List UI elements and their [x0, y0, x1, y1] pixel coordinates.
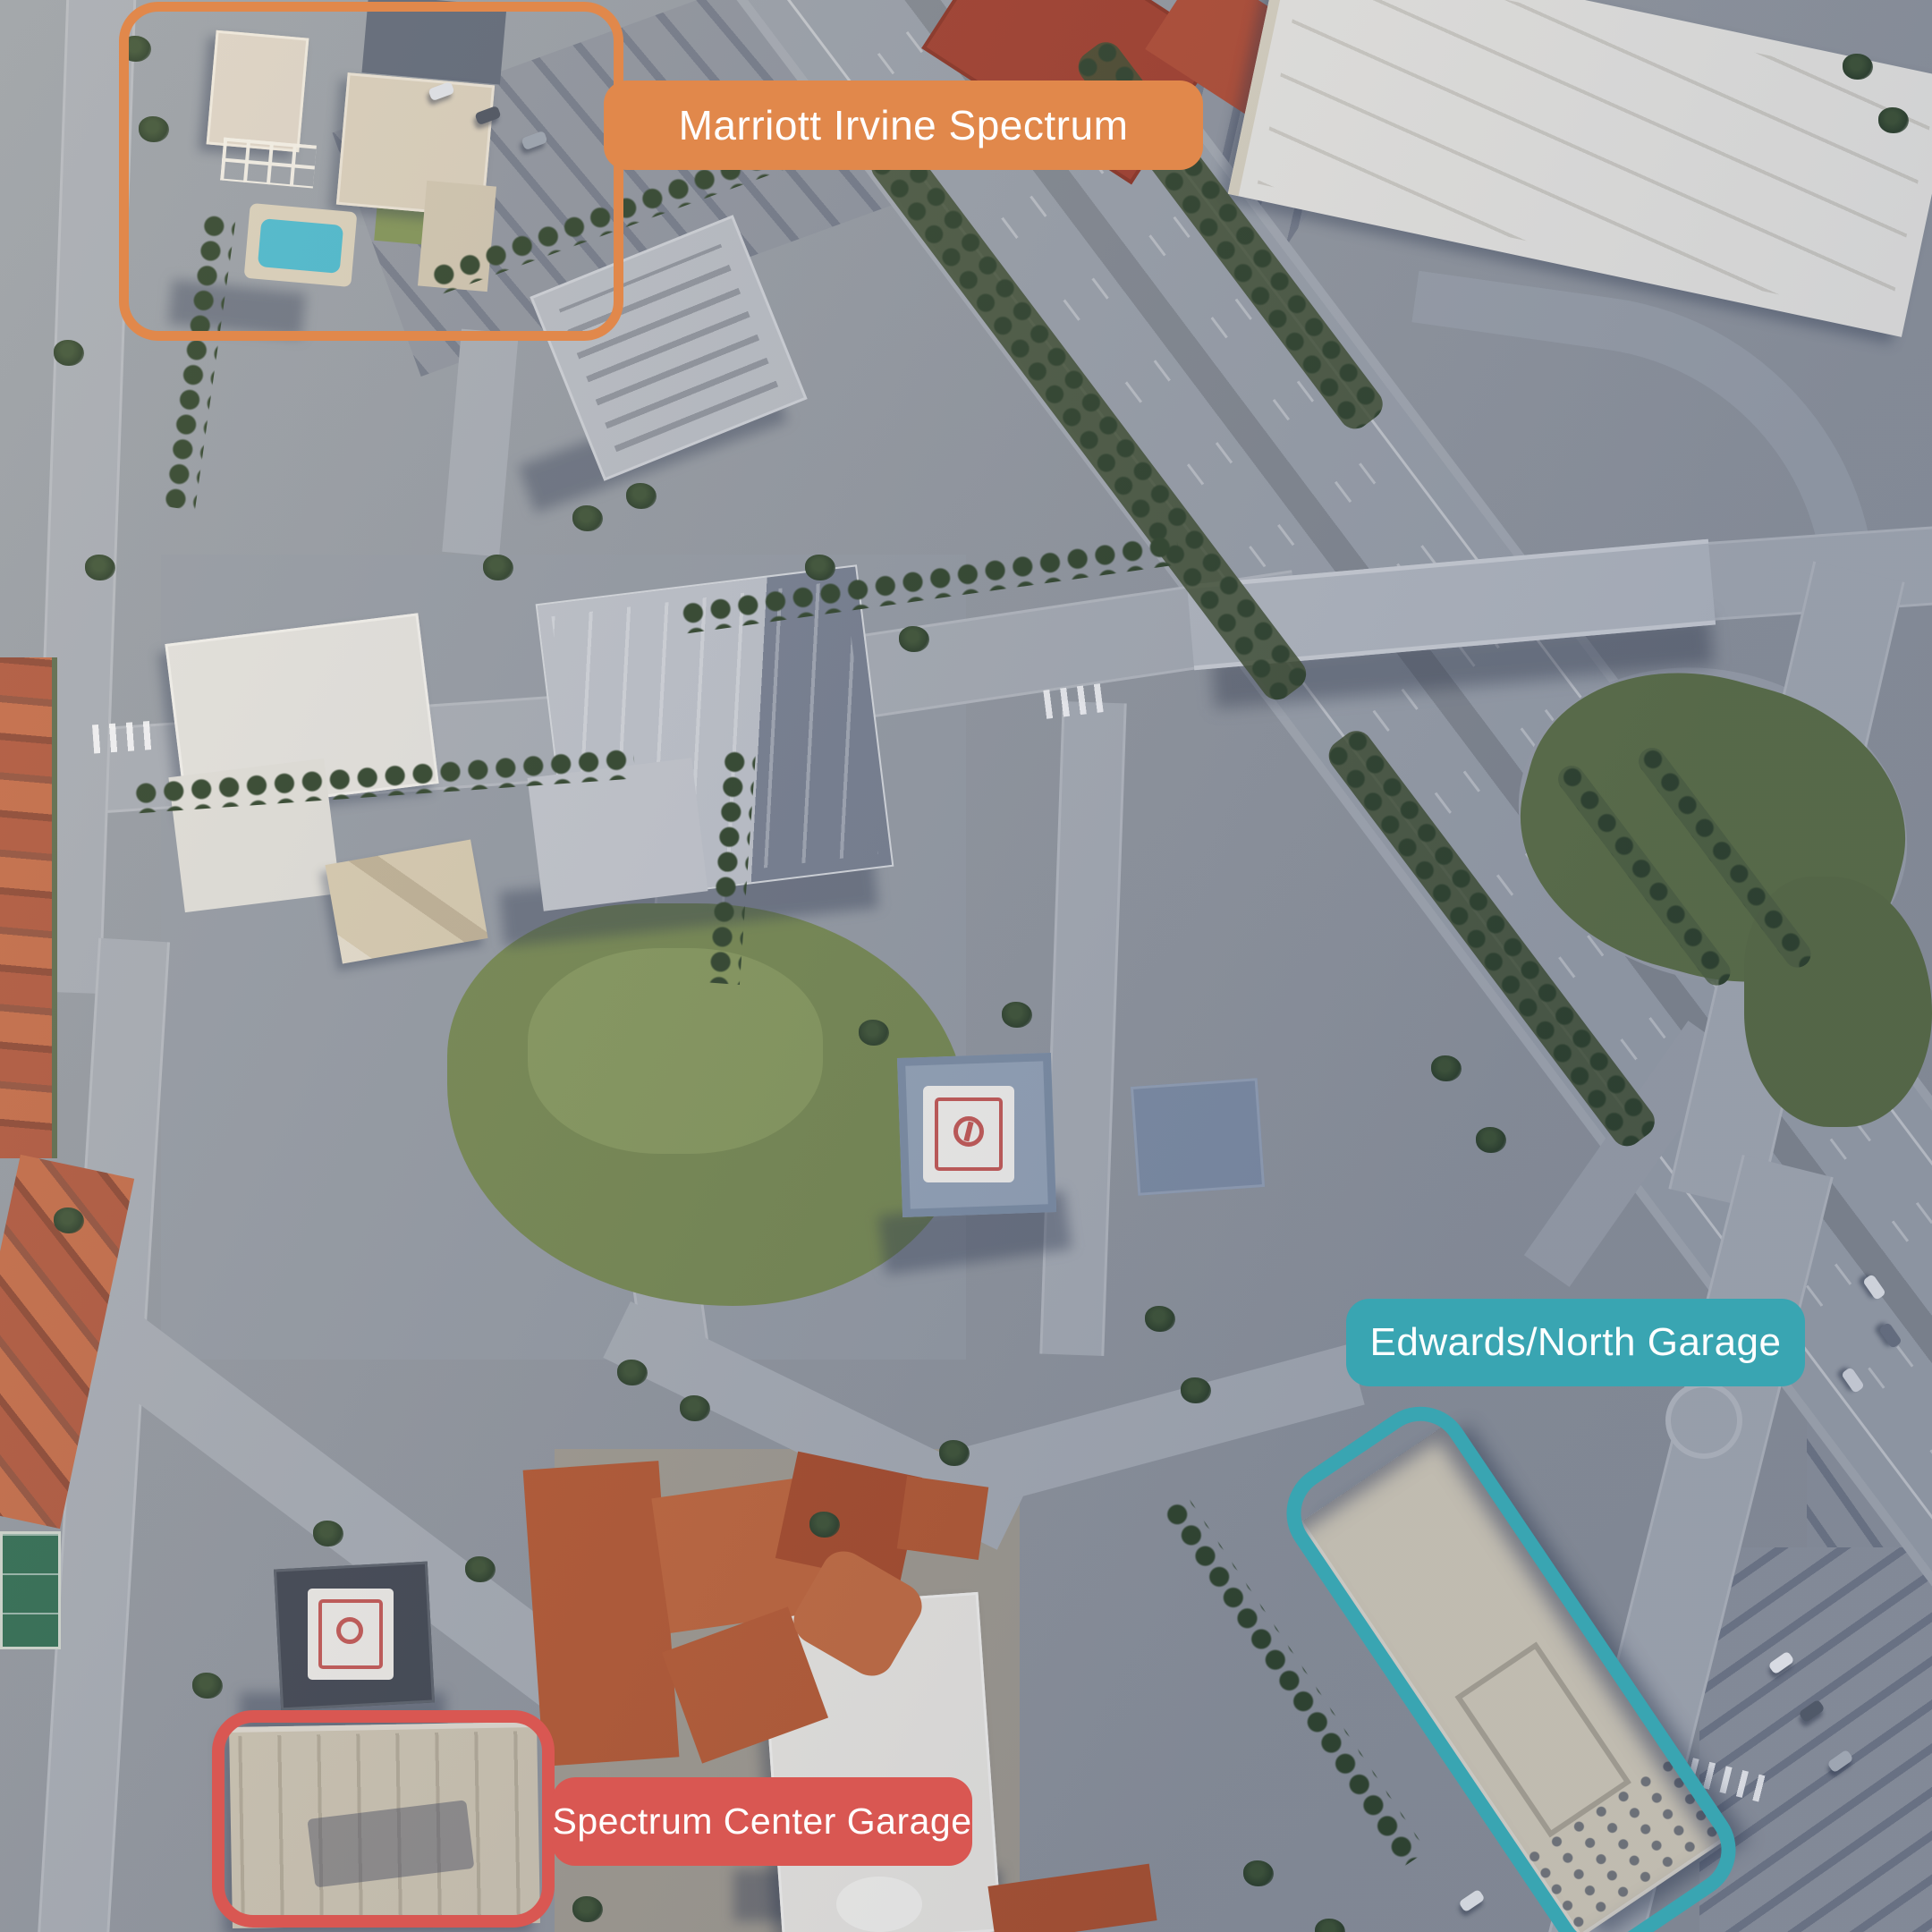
tree: [572, 505, 603, 531]
tree: [939, 1440, 970, 1466]
tree: [1315, 1919, 1345, 1932]
tree: [1843, 54, 1873, 80]
campus-lawn-bright: [528, 948, 823, 1154]
tree: [899, 626, 929, 652]
marriott-outline[interactable]: [119, 2, 623, 341]
tree: [1002, 1002, 1032, 1028]
edwards-north-garage-label[interactable]: Edwards/North Garage: [1346, 1299, 1805, 1386]
office-annex-east: [1131, 1078, 1265, 1196]
road-campus-east: [1039, 701, 1126, 1356]
parking-lot-southeast: [1699, 1547, 1932, 1932]
tree: [859, 1020, 889, 1046]
bigbox-white-roof: [1228, 0, 1932, 337]
tree: [1243, 1860, 1274, 1886]
tree: [465, 1556, 496, 1582]
tree: [1431, 1055, 1462, 1081]
tree: [313, 1521, 343, 1546]
tree: [805, 555, 835, 580]
spectrum-center-garage-outline[interactable]: [212, 1710, 555, 1928]
tree: [85, 555, 115, 580]
tree: [1181, 1377, 1211, 1403]
residential-roofs-west: [0, 657, 57, 1158]
village-roof: [897, 1476, 989, 1560]
satellite-map[interactable]: Marriott Irvine Spectrum Edwards/North G…: [0, 0, 1932, 1932]
tree: [626, 483, 657, 509]
tennis-court: [0, 1531, 61, 1649]
tree: [572, 1896, 603, 1922]
tree: [1145, 1306, 1175, 1332]
tree: [809, 1512, 840, 1538]
cul-de-sac: [1665, 1382, 1742, 1459]
tree: [680, 1395, 710, 1421]
tree: [54, 340, 84, 366]
tree: [1878, 107, 1909, 133]
car: [1458, 1889, 1485, 1913]
tree: [192, 1673, 223, 1699]
tree: [1476, 1127, 1506, 1153]
marriott-label[interactable]: Marriott Irvine Spectrum: [604, 80, 1203, 170]
black-tower-emblem: [336, 1617, 363, 1644]
tree: [483, 555, 513, 580]
tree: [617, 1360, 648, 1385]
crosswalk: [92, 721, 158, 754]
tree: [54, 1207, 84, 1233]
edwards-theater-rotunda: [836, 1877, 922, 1932]
spectrum-center-garage-label[interactable]: Spectrum Center Garage: [552, 1777, 972, 1866]
